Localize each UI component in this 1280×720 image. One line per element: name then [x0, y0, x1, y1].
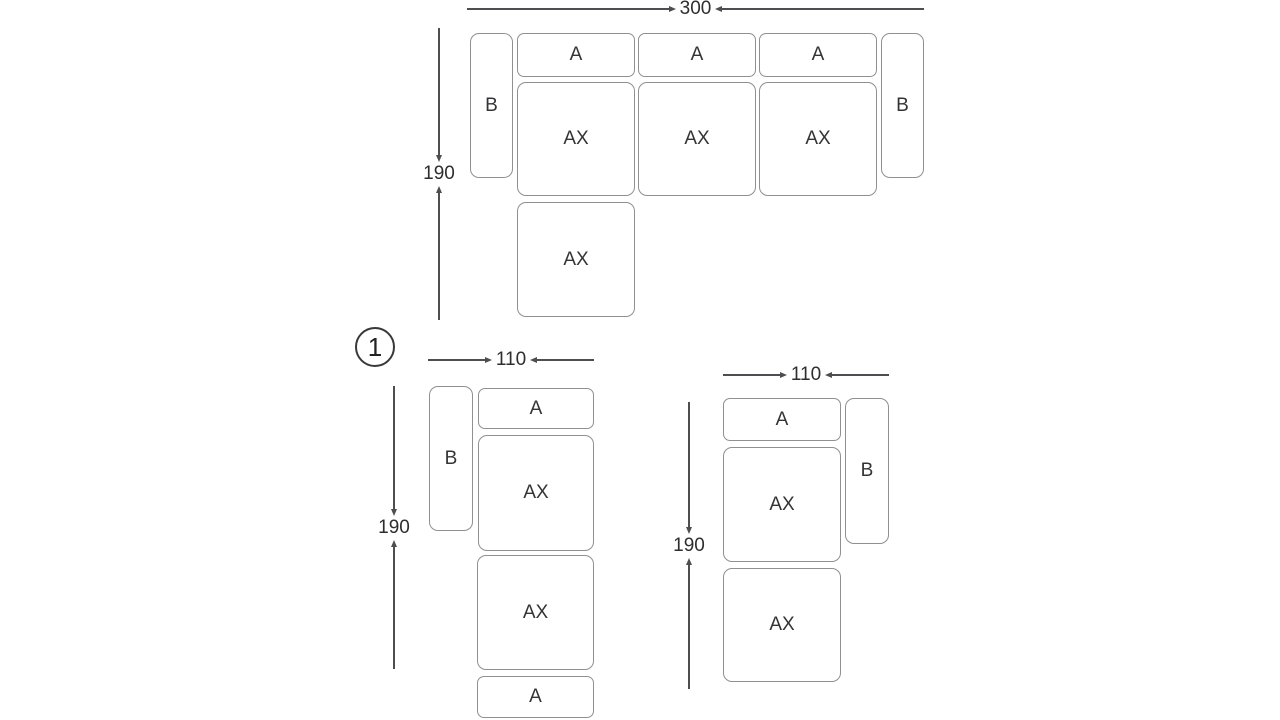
module-seat-2: AX: [477, 555, 594, 670]
arrow-right-icon: [669, 6, 676, 12]
dim-width-top: 300: [467, 0, 924, 18]
dim-height-right: 190: [669, 402, 709, 689]
dimension-line: [688, 402, 690, 527]
dimension-label: 110: [492, 351, 530, 369]
module-seat-3: AX: [759, 82, 877, 196]
dimension-line: [438, 193, 440, 320]
arrow-down-icon: [436, 155, 442, 162]
dimension-label: 110: [787, 366, 825, 384]
dim-height-top: 190: [419, 28, 459, 320]
dimension-line: [428, 359, 485, 361]
arrow-right-icon: [780, 372, 787, 378]
arrow-left-icon: [530, 357, 537, 363]
arrow-right-icon: [485, 357, 492, 363]
module-back-3: A: [759, 33, 877, 77]
module-arm-left: B: [470, 33, 513, 178]
arrow-down-icon: [391, 509, 397, 516]
dimension-line: [393, 547, 395, 670]
dimension-line: [467, 8, 669, 10]
dimension-line: [438, 28, 440, 155]
arrow-down-icon: [686, 527, 692, 534]
module-back-2: A: [638, 33, 756, 77]
dimension-line: [832, 374, 889, 376]
dim-width-left: 110: [428, 351, 594, 369]
arrow-up-icon: [436, 186, 442, 193]
dimension-line: [688, 565, 690, 690]
module-arm: B: [429, 386, 473, 531]
dim-height-left: 190: [374, 386, 414, 669]
dimension-label: 190: [378, 516, 410, 540]
module-seat-1: AX: [517, 82, 635, 196]
dimension-line: [537, 359, 594, 361]
dimension-line: [723, 374, 780, 376]
module-seat-2: AX: [638, 82, 756, 196]
dimension-line: [722, 8, 924, 10]
module-back-1: A: [517, 33, 635, 77]
module-back-top: A: [478, 388, 594, 429]
dimension-label: 190: [673, 534, 705, 558]
dimension-label: 190: [423, 162, 455, 186]
module-seat-2: AX: [723, 568, 841, 682]
module-seat-1: AX: [723, 447, 841, 562]
module-back: A: [723, 398, 841, 441]
module-arm-right: B: [881, 33, 924, 178]
diagram-canvas: 300 190 B A A A AX AX AX B AX 1 11: [0, 0, 1280, 720]
arrow-left-icon: [825, 372, 832, 378]
dimension-label: 300: [676, 0, 716, 18]
arrow-up-icon: [686, 558, 692, 565]
dim-width-right: 110: [723, 366, 889, 384]
module-back-bottom: A: [477, 676, 594, 718]
module-seat-1: AX: [478, 435, 594, 551]
dimension-line: [393, 386, 395, 509]
arrow-up-icon: [391, 540, 397, 547]
figure-number-badge: 1: [355, 327, 395, 367]
module-chaise-seat: AX: [517, 202, 635, 317]
arrow-left-icon: [715, 6, 722, 12]
module-arm: B: [845, 398, 889, 544]
